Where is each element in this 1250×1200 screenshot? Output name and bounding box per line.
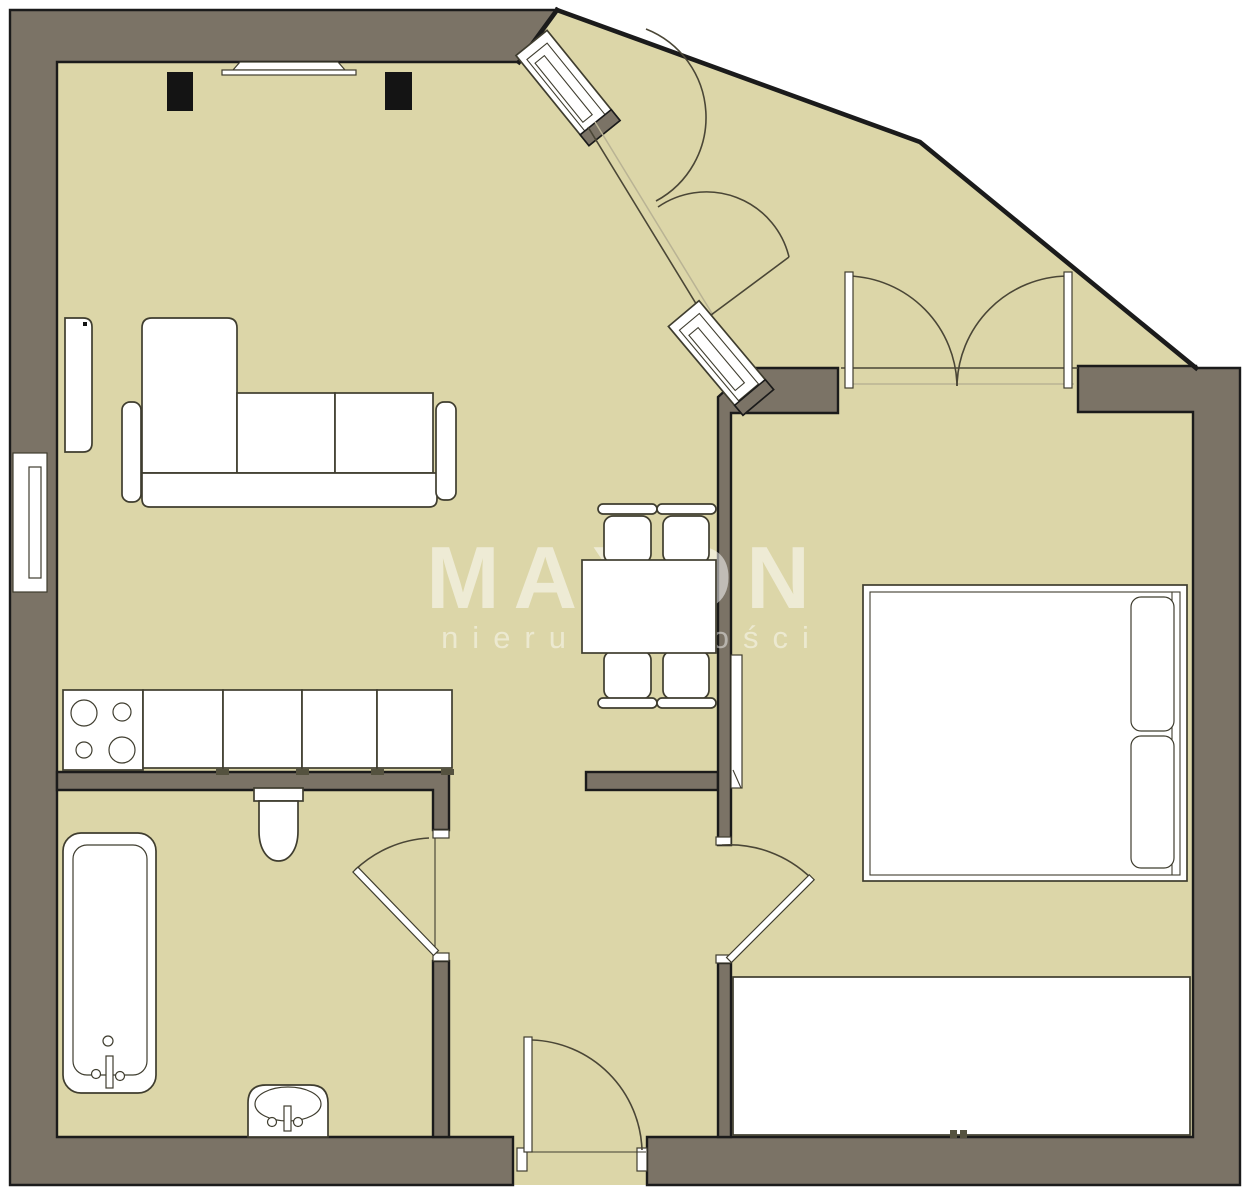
entrance-door-leaf xyxy=(524,1037,532,1152)
pillow-bottom xyxy=(1131,736,1174,868)
window-left-wall xyxy=(13,453,47,592)
bed xyxy=(863,585,1187,881)
wall-cabinet xyxy=(65,318,92,452)
bathtub xyxy=(63,833,156,1093)
door-leaf-left xyxy=(845,272,853,388)
cooktop xyxy=(63,690,143,770)
speaker-right xyxy=(385,72,412,110)
wall-hall-stub xyxy=(586,772,718,790)
wall-bathroom-hall-lower xyxy=(433,961,449,1137)
wash-basin xyxy=(248,1085,328,1137)
speaker-left xyxy=(167,72,193,111)
door-leaf-right xyxy=(1064,272,1072,388)
wardrobe xyxy=(733,977,1190,1138)
kitchen-counter xyxy=(143,690,454,775)
floor-plan-drawing: MAXON nieruchomości xyxy=(0,0,1250,1200)
radiator-bedroom xyxy=(731,655,742,788)
tv-wall-unit xyxy=(222,62,356,75)
floor-plan-canvas: MAXON nieruchomości xyxy=(0,0,1250,1200)
wall-bedroom-west-lower xyxy=(718,963,731,1137)
pillow-top xyxy=(1131,597,1174,731)
dining-table xyxy=(582,560,716,653)
